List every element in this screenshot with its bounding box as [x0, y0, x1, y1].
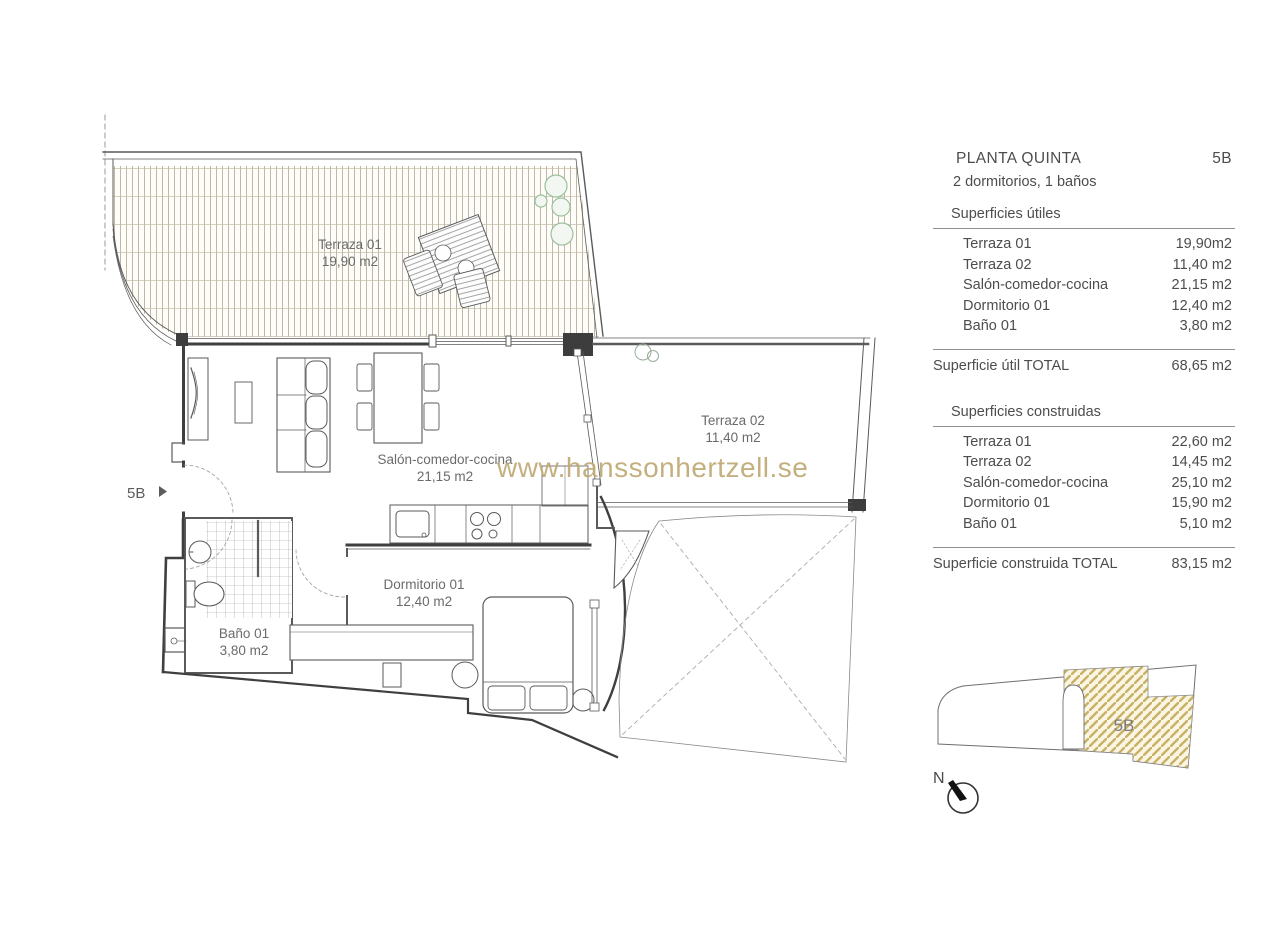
row-label: Baño 01: [963, 514, 1017, 535]
table-row: Dormitorio 01 15,90 m2: [933, 493, 1235, 514]
divider: [933, 547, 1235, 548]
row-value: 15,90 m2: [1172, 493, 1232, 514]
void-cross: [661, 524, 845, 759]
row-label: Terraza 02: [963, 452, 1032, 473]
superficies-utiles-section: Superficies útiles Terraza 01 19,90m2 Te…: [933, 206, 1235, 377]
coffee-table: [235, 382, 252, 423]
total-value: 83,15 m2: [1172, 554, 1232, 575]
row-label: Terraza 02: [963, 255, 1032, 276]
salon-area-label: 21,15 m2: [417, 469, 473, 484]
side-table: [452, 662, 478, 688]
terraza2-area: 11,40 m2: [705, 430, 760, 445]
divider: [933, 426, 1235, 427]
wall: [852, 338, 864, 512]
row-label: Dormitorio 01: [963, 493, 1050, 514]
nightstand: [383, 663, 401, 687]
terraza-01-area: [103, 115, 603, 345]
terraza1-area: 19,90 m2: [322, 254, 378, 269]
entrance-arrow-icon: [159, 486, 167, 497]
north-arrow-icon: N: [933, 770, 978, 813]
wardrobe: [290, 625, 473, 660]
row-label: Baño 01: [963, 316, 1017, 337]
row-label: Terraza 01: [963, 234, 1032, 255]
sofa: [277, 358, 330, 472]
salon-area: [172, 333, 593, 549]
terraza1-label: Terraza 01: [318, 237, 382, 252]
row-value: 11,40 m2: [1173, 255, 1232, 276]
tv-unit: [188, 358, 208, 440]
row-value: 25,10 m2: [1172, 473, 1232, 494]
dormitorio-label: Dormitorio 01: [383, 577, 464, 592]
bano-label: Baño 01: [219, 626, 269, 641]
unit-badge: 5B: [1212, 150, 1232, 168]
total-row: Superficie útil TOTAL 68,65 m2: [933, 356, 1235, 377]
row-value: 21,15 m2: [1172, 275, 1232, 296]
divider: [933, 228, 1235, 229]
locator-unit-label: 5B: [1114, 716, 1135, 735]
table-row: Salón-comedor-cocina 25,10 m2: [933, 473, 1235, 494]
row-value: 14,45 m2: [1172, 452, 1232, 473]
void-area: [597, 487, 856, 762]
area-summary-panel: PLANTA QUINTA 5B 2 dormitorios, 1 baños …: [933, 150, 1235, 574]
door-swing: [184, 465, 233, 514]
total-value: 68,65 m2: [1172, 356, 1232, 377]
table-row: Terraza 01 19,90m2: [933, 234, 1235, 255]
exterior-wall: [163, 520, 183, 672]
plant-icon: [635, 344, 659, 362]
total-label: Superficie construida TOTAL: [933, 554, 1118, 575]
plan-title: PLANTA QUINTA: [956, 150, 1081, 168]
dormitorio-area: 12,40 m2: [396, 594, 452, 609]
row-value: 19,90m2: [1176, 234, 1232, 255]
row-label: Salón-comedor-cocina: [963, 275, 1108, 296]
bano-area-label: 3,80 m2: [220, 643, 269, 658]
table-row: Dormitorio 01 12,40 m2: [933, 296, 1235, 317]
locator-map: 5B: [938, 665, 1196, 768]
entrance-unit-label: 5B: [127, 485, 145, 502]
entrance: [159, 465, 233, 514]
divider: [933, 349, 1235, 350]
total-row: Superficie construida TOTAL 83,15 m2: [933, 554, 1235, 575]
section-heading: Superficies útiles: [933, 206, 1235, 222]
door-swing: [296, 550, 345, 597]
row-label: Dormitorio 01: [963, 296, 1050, 317]
table-row: Salón-comedor-cocina 21,15 m2: [933, 275, 1235, 296]
salon-label: Salón-comedor-cocina: [377, 452, 513, 467]
bed: [483, 597, 573, 713]
sliding-glass-door: [574, 349, 601, 486]
void-outline: [619, 515, 856, 762]
floorplan-page: Terraza 01 19,90 m2 Salón-comedor-cocina…: [0, 0, 1280, 933]
row-value: 3,80 m2: [1180, 316, 1232, 337]
structural-column: [848, 499, 866, 511]
total-label: Superficie útil TOTAL: [933, 356, 1069, 377]
section-heading: Superficies construidas: [933, 404, 1235, 420]
bathroom-sink: [189, 541, 211, 563]
row-value: 22,60 m2: [1172, 432, 1232, 453]
row-value: 5,10 m2: [1180, 514, 1232, 535]
plan-subtitle: 2 dormitorios, 1 baños: [933, 173, 1235, 191]
row-label: Terraza 01: [963, 432, 1032, 453]
toilet: [186, 581, 224, 607]
row-value: 12,40 m2: [1172, 296, 1232, 317]
superficies-construidas-section: Superficies construidas Terraza 01 22,60…: [933, 404, 1235, 575]
table-row: Baño 01 5,10 m2: [933, 514, 1235, 535]
north-label: N: [933, 770, 945, 787]
dining-set: [357, 353, 439, 443]
table-row: Baño 01 3,80 m2: [933, 316, 1235, 337]
terraza2-label: Terraza 02: [701, 413, 765, 428]
table-row: Terraza 02 11,40 m2: [933, 255, 1235, 276]
row-label: Salón-comedor-cocina: [963, 473, 1108, 494]
table-row: Terraza 01 22,60 m2: [933, 432, 1235, 453]
table-row: Terraza 02 14,45 m2: [933, 452, 1235, 473]
